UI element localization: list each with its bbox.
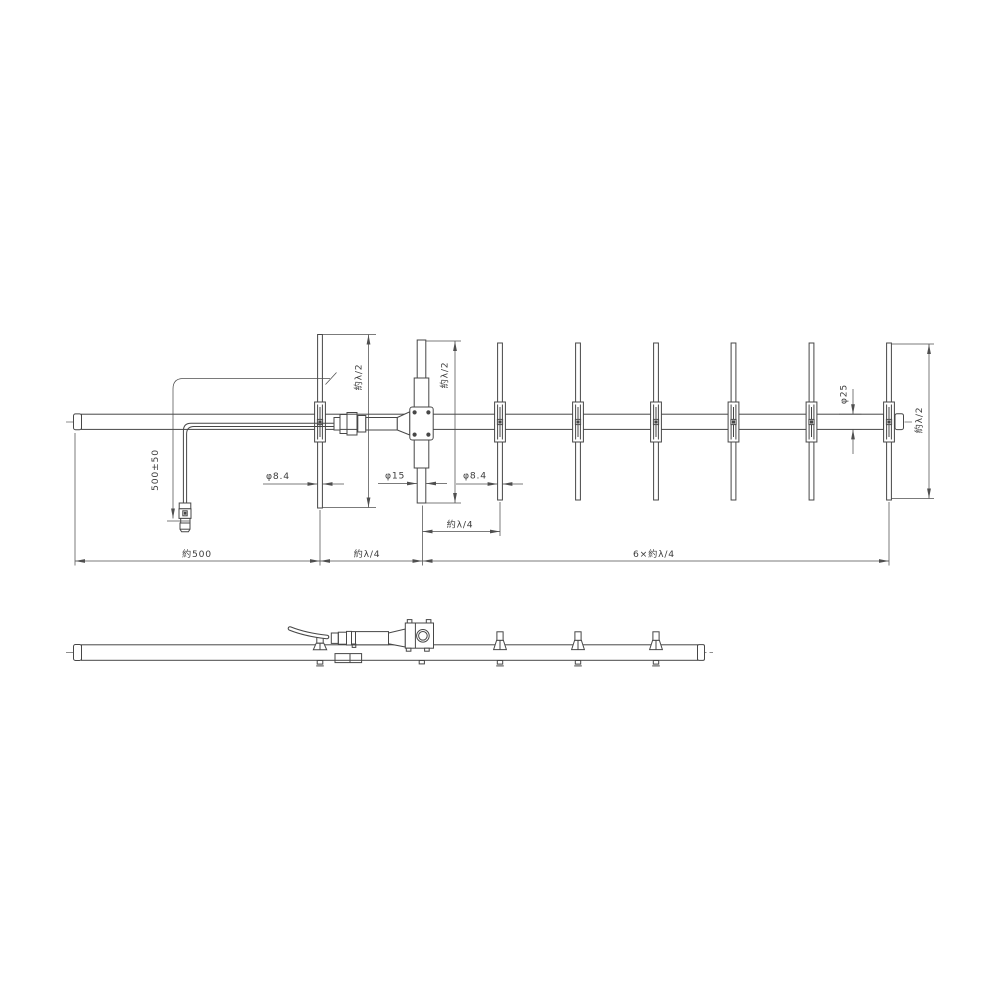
- dimension-reflector-diameter: φ8.4: [263, 471, 344, 484]
- dim-label-reflector-length: 約λ/2: [353, 364, 365, 391]
- feed-tube: [366, 418, 398, 431]
- side-boom-right-cap: [698, 645, 705, 661]
- boom-left-cap: [74, 414, 82, 430]
- boom: [82, 414, 884, 429]
- dimension-driven-director-spacing: 約λ/4: [423, 502, 501, 536]
- dim-label-directors-span: 6×約λ/4: [633, 548, 675, 560]
- dimension-chain: 約500 約λ/4 6×約λ/4: [75, 433, 889, 566]
- dim-label-front-boom-length: 約500: [182, 548, 212, 560]
- director-3-clamp: [651, 402, 662, 442]
- reflector-clamp: [315, 402, 326, 442]
- driven-lower-sleeve: [414, 440, 429, 468]
- director-5-clamp: [806, 402, 817, 442]
- connector-ferrule: [179, 503, 191, 509]
- director-4-clamp: [728, 402, 739, 442]
- dim-label-boom-diameter: φ25: [839, 384, 850, 404]
- dimension-driven-diameter: φ15: [378, 471, 447, 484]
- side-view: [66, 620, 713, 666]
- coax-cable: [179, 423, 334, 532]
- dim-label-reflector-driven-spacing: 約λ/4: [354, 548, 381, 560]
- dim-label-driven-length: 約λ/2: [439, 362, 451, 389]
- side-feed-assembly: [331, 629, 405, 647]
- dimension-cable-length: 500±50: [150, 373, 337, 522]
- connector-plug: [180, 523, 190, 532]
- director-6-clamp: [884, 402, 895, 442]
- feed-ring: [358, 416, 366, 433]
- antenna-drawing: 約λ/2 約λ/2 約λ/2 φ25 500±50: [0, 0, 1000, 1000]
- dim-label-cable-length: 500±50: [150, 449, 161, 491]
- director-1-clamp: [495, 402, 506, 442]
- side-coax-cable: [290, 629, 327, 638]
- dim-label-driven-diameter: φ15: [385, 471, 405, 482]
- plan-view: 約λ/2 約λ/2 約λ/2 φ25 500±50: [66, 335, 934, 566]
- drawing-canvas: 約λ/2 約λ/2 約λ/2 φ25 500±50: [0, 0, 1000, 1000]
- boom-right-cap: [895, 414, 904, 430]
- driven-upper-sleeve: [414, 378, 429, 407]
- director-2-clamp: [573, 402, 584, 442]
- dim-label-reflector-diameter: φ8.4: [266, 471, 290, 482]
- dim-label-last-director-length: 約λ/2: [913, 407, 925, 434]
- side-boom-left-cap: [74, 645, 82, 661]
- dim-label-director-diameter: φ8.4: [463, 471, 487, 482]
- dimension-director-diameter: φ8.4: [456, 471, 523, 485]
- side-boom: [82, 645, 698, 661]
- dim-label-driven-director-spacing: 約λ/4: [447, 519, 474, 531]
